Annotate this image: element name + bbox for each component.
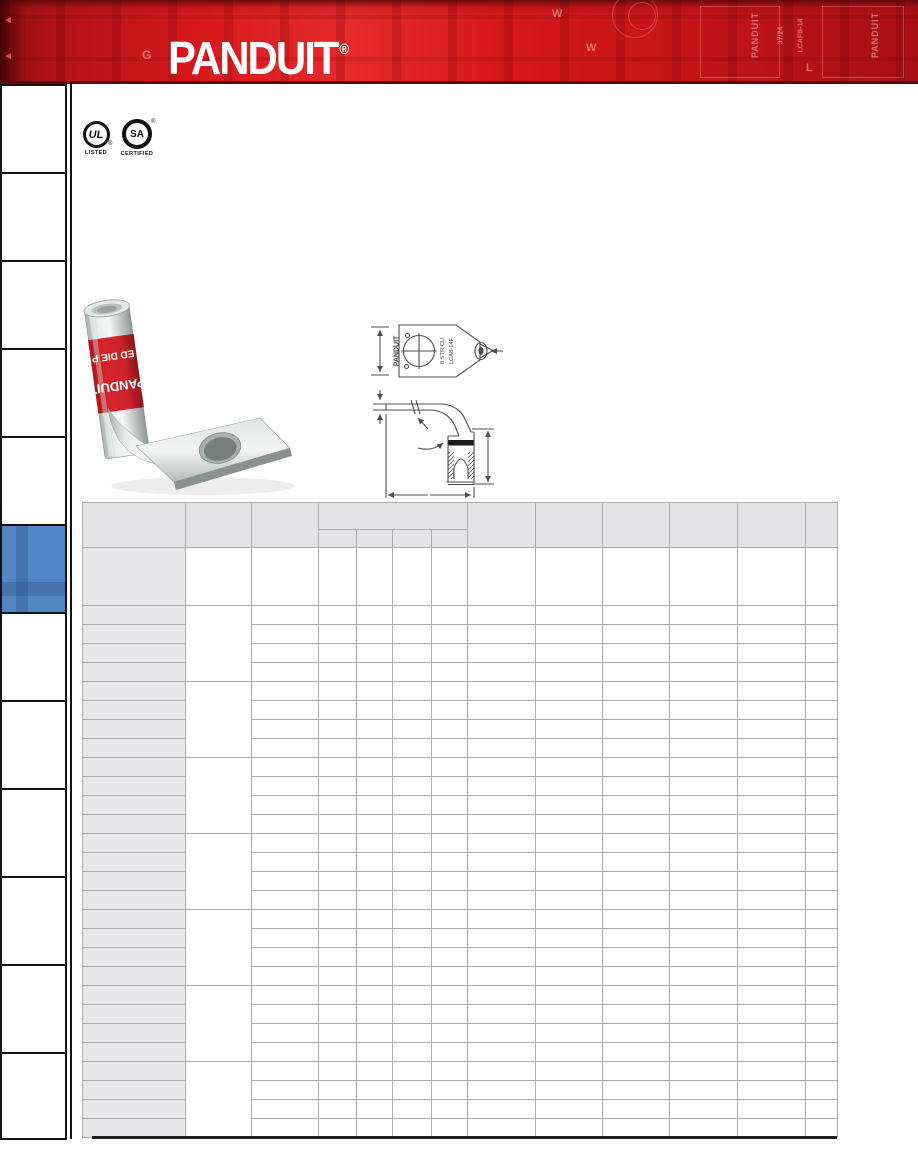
length-extension-lines bbox=[386, 414, 474, 498]
table-cell bbox=[738, 739, 806, 758]
table-cell bbox=[319, 815, 357, 834]
table-cell bbox=[738, 606, 806, 625]
table-cell bbox=[603, 701, 670, 720]
table-cell bbox=[393, 1119, 432, 1138]
table-cell bbox=[603, 853, 670, 872]
table-cell bbox=[432, 758, 468, 777]
table-cell bbox=[603, 777, 670, 796]
table-cell bbox=[806, 682, 838, 701]
table-cell bbox=[432, 815, 468, 834]
table-cell bbox=[252, 739, 319, 758]
table-cell bbox=[738, 815, 806, 834]
table-cell bbox=[432, 720, 468, 739]
table-cell-part bbox=[83, 663, 186, 682]
table-cell bbox=[806, 663, 838, 682]
sidebar-tab[interactable] bbox=[0, 172, 67, 260]
table-cell bbox=[357, 910, 393, 929]
table-cell bbox=[468, 758, 536, 777]
table-cell bbox=[357, 625, 393, 644]
table-row bbox=[83, 1062, 838, 1081]
header-arrow-glyph: ◄ bbox=[3, 16, 13, 26]
table-cell bbox=[319, 834, 357, 853]
table-cell bbox=[357, 663, 393, 682]
table-cell bbox=[603, 548, 670, 606]
table-cell bbox=[357, 644, 393, 663]
table-cell bbox=[670, 834, 738, 853]
table-cell bbox=[432, 796, 468, 815]
table-cell bbox=[468, 1100, 536, 1119]
table-cell bbox=[603, 720, 670, 739]
table-subheader-cell bbox=[357, 530, 393, 548]
table-header-cell bbox=[536, 503, 603, 548]
sidebar-tab-active[interactable] bbox=[0, 524, 67, 612]
table-cell-merged bbox=[186, 910, 252, 986]
table-cell-part bbox=[83, 853, 186, 872]
table-cell bbox=[806, 606, 838, 625]
table-cell bbox=[432, 948, 468, 967]
table-cell bbox=[738, 663, 806, 682]
table-cell bbox=[536, 853, 603, 872]
table-cell bbox=[536, 891, 603, 910]
table-cell bbox=[603, 1024, 670, 1043]
table-cell bbox=[252, 910, 319, 929]
table-cell bbox=[357, 701, 393, 720]
table-cell bbox=[603, 1005, 670, 1024]
wall-hatch bbox=[449, 452, 455, 479]
table-cell bbox=[670, 1043, 738, 1062]
table-cell bbox=[432, 606, 468, 625]
sidebar-tab[interactable] bbox=[0, 348, 67, 436]
table-cell bbox=[393, 815, 432, 834]
table-cell bbox=[670, 929, 738, 948]
table-cell bbox=[357, 967, 393, 986]
table-cell bbox=[670, 720, 738, 739]
table-cell bbox=[603, 834, 670, 853]
table-cell bbox=[252, 891, 319, 910]
csa-registered-symbol: ® bbox=[151, 119, 155, 125]
table-cell bbox=[252, 853, 319, 872]
table-cell bbox=[536, 1081, 603, 1100]
table-cell bbox=[468, 1119, 536, 1138]
inspection-dot bbox=[406, 334, 410, 338]
table-cell bbox=[806, 872, 838, 891]
table-cell bbox=[670, 1062, 738, 1081]
table-cell bbox=[603, 796, 670, 815]
table-cell bbox=[357, 872, 393, 891]
table-cell bbox=[468, 815, 536, 834]
table-cell bbox=[252, 929, 319, 948]
table-cell bbox=[738, 644, 806, 663]
table-cell bbox=[357, 815, 393, 834]
table-cell bbox=[432, 777, 468, 796]
table-cell bbox=[670, 701, 738, 720]
table-cell bbox=[357, 929, 393, 948]
table-cell bbox=[536, 758, 603, 777]
sidebar-tab[interactable] bbox=[0, 436, 67, 524]
csa-caption: CERTIFIED bbox=[119, 151, 155, 157]
table-cell bbox=[319, 1005, 357, 1024]
table-cell bbox=[393, 739, 432, 758]
table-cell bbox=[536, 929, 603, 948]
table-cell bbox=[738, 1081, 806, 1100]
table-cell bbox=[738, 548, 806, 606]
table-cell bbox=[432, 834, 468, 853]
table-header-cell bbox=[670, 503, 738, 548]
table-cell bbox=[393, 796, 432, 815]
table-cell-merged bbox=[186, 606, 252, 682]
table-cell-part bbox=[83, 967, 186, 986]
table-cell bbox=[603, 1062, 670, 1081]
table-cell bbox=[319, 1062, 357, 1081]
table-cell bbox=[393, 625, 432, 644]
table-cell bbox=[319, 625, 357, 644]
table-cell bbox=[738, 967, 806, 986]
table-cell bbox=[670, 910, 738, 929]
sidebar-tab[interactable] bbox=[0, 700, 67, 788]
table-cell bbox=[806, 796, 838, 815]
table-cell-part bbox=[83, 739, 186, 758]
table-cell bbox=[738, 929, 806, 948]
table-cell bbox=[252, 625, 319, 644]
table-cell bbox=[536, 1043, 603, 1062]
table-cell bbox=[603, 872, 670, 891]
registered-trademark-symbol: ® bbox=[340, 41, 350, 58]
table-cell bbox=[670, 758, 738, 777]
table-row bbox=[83, 986, 838, 1005]
header-pattern-label-panduit: PANDUIT bbox=[870, 12, 880, 58]
table-cell bbox=[738, 1062, 806, 1081]
table-cell bbox=[319, 682, 357, 701]
table-cell-merged bbox=[186, 682, 252, 758]
table-cell bbox=[252, 720, 319, 739]
table-cell bbox=[393, 910, 432, 929]
table-cell bbox=[357, 720, 393, 739]
table-cell bbox=[319, 1119, 357, 1138]
table-cell bbox=[432, 663, 468, 682]
table-cell bbox=[670, 625, 738, 644]
leader-arrow-curved bbox=[418, 443, 443, 449]
table-cell bbox=[468, 644, 536, 663]
table-cell bbox=[393, 853, 432, 872]
table-cell bbox=[536, 1119, 603, 1138]
table-cell bbox=[738, 758, 806, 777]
table-cell bbox=[319, 777, 357, 796]
table-cell bbox=[319, 644, 357, 663]
table-cell bbox=[536, 682, 603, 701]
table-cell bbox=[536, 910, 603, 929]
diagram-marking-line2: LCA8-14F bbox=[449, 337, 455, 364]
table-cell bbox=[670, 777, 738, 796]
table-cell bbox=[319, 1043, 357, 1062]
table-cell bbox=[319, 548, 357, 606]
table-cell bbox=[252, 606, 319, 625]
inspection-dot bbox=[405, 365, 409, 369]
table-cell bbox=[357, 1100, 393, 1119]
sidebar-tab[interactable] bbox=[0, 84, 67, 172]
table-cell bbox=[393, 758, 432, 777]
table-cell bbox=[603, 1100, 670, 1119]
table-cell bbox=[670, 682, 738, 701]
table-cell-part bbox=[83, 1043, 186, 1062]
table-cell bbox=[806, 834, 838, 853]
panduit-logo: PANDUIT® bbox=[168, 32, 349, 85]
table-cell bbox=[432, 682, 468, 701]
table-cell-part bbox=[83, 1119, 186, 1138]
sidebar-tab[interactable] bbox=[0, 612, 67, 700]
table-cell bbox=[536, 1024, 603, 1043]
table-cell-part bbox=[83, 644, 186, 663]
table-cell bbox=[468, 625, 536, 644]
table-cell-part bbox=[83, 1005, 186, 1024]
table-cell bbox=[393, 891, 432, 910]
table-cell bbox=[603, 910, 670, 929]
table-cell bbox=[252, 777, 319, 796]
table-row bbox=[83, 758, 838, 777]
table-cell bbox=[252, 948, 319, 967]
bore-sides bbox=[454, 468, 468, 479]
table-cell bbox=[806, 948, 838, 967]
table-cell bbox=[536, 777, 603, 796]
table-cell bbox=[357, 796, 393, 815]
wall-hatch bbox=[468, 452, 474, 479]
header-pattern-part-number: LCAFB-14 bbox=[797, 19, 804, 53]
csa-monogram: SA bbox=[130, 129, 144, 140]
product-photo-lug: ED DIE P PANDUIT bbox=[78, 296, 300, 498]
table-cell bbox=[357, 853, 393, 872]
table-cell-part bbox=[83, 701, 186, 720]
table-cell bbox=[357, 606, 393, 625]
thickness-extension-lines bbox=[373, 404, 389, 410]
table-cell bbox=[468, 1062, 536, 1081]
table-cell bbox=[468, 910, 536, 929]
table-row bbox=[83, 682, 838, 701]
ul-monogram: UL bbox=[89, 129, 104, 141]
sidebar-tab[interactable] bbox=[0, 788, 67, 876]
table-cell bbox=[738, 1005, 806, 1024]
table-cell-part bbox=[83, 1081, 186, 1100]
table-cell bbox=[357, 986, 393, 1005]
sidebar bbox=[0, 84, 67, 1140]
table-cell-part bbox=[83, 910, 186, 929]
table-cell bbox=[536, 986, 603, 1005]
table-cell bbox=[536, 967, 603, 986]
table-cell bbox=[319, 1024, 357, 1043]
table-header-cell bbox=[252, 503, 319, 548]
table-subheader-cell bbox=[319, 530, 357, 548]
table-cell bbox=[603, 948, 670, 967]
table-cell bbox=[603, 625, 670, 644]
table-cell bbox=[432, 701, 468, 720]
table-cell bbox=[468, 796, 536, 815]
table-cell-part bbox=[83, 929, 186, 948]
table-cell bbox=[468, 682, 536, 701]
table-cell bbox=[319, 796, 357, 815]
table-subheader-cell bbox=[432, 530, 468, 548]
table-cell bbox=[393, 606, 432, 625]
table-cell bbox=[468, 720, 536, 739]
table-cell bbox=[738, 853, 806, 872]
footer-rule bbox=[92, 1136, 837, 1139]
table-cell bbox=[806, 701, 838, 720]
table-group-header-cell bbox=[319, 503, 468, 530]
table-cell bbox=[536, 548, 603, 606]
table-cell bbox=[738, 1043, 806, 1062]
bend-inner-line bbox=[432, 410, 459, 436]
table-row bbox=[83, 834, 838, 853]
table-cell bbox=[738, 1119, 806, 1138]
sidebar-tab[interactable] bbox=[0, 1052, 67, 1140]
table-cell bbox=[738, 872, 806, 891]
csa-certified-mark: SA ® CERTIFIED bbox=[119, 119, 155, 157]
table-cell bbox=[738, 834, 806, 853]
table-cell bbox=[319, 986, 357, 1005]
header-left-shade bbox=[0, 0, 26, 81]
table-cell bbox=[468, 1081, 536, 1100]
table-cell bbox=[603, 891, 670, 910]
table-cell bbox=[603, 815, 670, 834]
table-cell bbox=[252, 1005, 319, 1024]
table-cell bbox=[806, 1081, 838, 1100]
table-cell bbox=[536, 720, 603, 739]
table-cell bbox=[670, 891, 738, 910]
table-cell bbox=[806, 1005, 838, 1024]
sidebar-tab[interactable] bbox=[0, 876, 67, 964]
break-ticks bbox=[411, 400, 420, 414]
table-cell bbox=[319, 929, 357, 948]
table-cell bbox=[319, 720, 357, 739]
table-cell bbox=[357, 548, 393, 606]
table-cell bbox=[319, 910, 357, 929]
table-cell-part bbox=[83, 720, 186, 739]
table-cell bbox=[806, 967, 838, 986]
table-cell-part bbox=[83, 625, 186, 644]
diagram-side-view bbox=[360, 386, 500, 504]
sidebar-tab[interactable] bbox=[0, 260, 67, 348]
table-cell bbox=[252, 1100, 319, 1119]
table-cell bbox=[319, 606, 357, 625]
table-cell bbox=[357, 682, 393, 701]
table-cell bbox=[670, 815, 738, 834]
table-cell bbox=[603, 986, 670, 1005]
table-cell bbox=[670, 1119, 738, 1138]
table-cell bbox=[252, 644, 319, 663]
table-cell bbox=[536, 739, 603, 758]
table-cell bbox=[357, 1062, 393, 1081]
table-cell bbox=[319, 872, 357, 891]
table-cell bbox=[252, 682, 319, 701]
table-cell bbox=[393, 1005, 432, 1024]
table-cell bbox=[357, 834, 393, 853]
table-cell bbox=[670, 548, 738, 606]
table-cell bbox=[536, 1062, 603, 1081]
table-subheader-cell bbox=[393, 530, 432, 548]
diagram-brand-text: PANDUIT bbox=[394, 335, 401, 366]
table-cell bbox=[738, 796, 806, 815]
table-cell bbox=[432, 853, 468, 872]
header-pattern-label-w-dim: W bbox=[586, 42, 596, 54]
table-cell bbox=[806, 1100, 838, 1119]
height-extension-lines bbox=[472, 429, 494, 484]
table-cell-part bbox=[83, 606, 186, 625]
table-cell bbox=[468, 891, 536, 910]
table-cell bbox=[670, 1100, 738, 1119]
table-cell bbox=[603, 967, 670, 986]
table-cell bbox=[432, 739, 468, 758]
table-cell bbox=[357, 1043, 393, 1062]
table-cell bbox=[252, 548, 319, 606]
table-cell bbox=[468, 986, 536, 1005]
ul-caption: LISTED bbox=[80, 150, 112, 156]
table-cell bbox=[357, 758, 393, 777]
table-cell bbox=[603, 644, 670, 663]
table-cell bbox=[738, 910, 806, 929]
table-cell bbox=[393, 929, 432, 948]
ul-registered-symbol: ® bbox=[108, 141, 112, 147]
table-cell bbox=[670, 644, 738, 663]
product-table bbox=[82, 502, 838, 1138]
table-cell bbox=[252, 872, 319, 891]
csa-circle-icon: SA bbox=[122, 119, 152, 149]
table-cell bbox=[670, 872, 738, 891]
table-cell bbox=[806, 739, 838, 758]
table-cell bbox=[252, 1081, 319, 1100]
table-cell bbox=[432, 910, 468, 929]
table-cell bbox=[393, 777, 432, 796]
table-cell bbox=[357, 777, 393, 796]
table-cell bbox=[806, 644, 838, 663]
table-cell bbox=[670, 967, 738, 986]
table-cell bbox=[738, 625, 806, 644]
table-cell bbox=[393, 644, 432, 663]
table-cell bbox=[468, 701, 536, 720]
sidebar-tab[interactable] bbox=[0, 964, 67, 1052]
table-cell bbox=[357, 739, 393, 758]
ul-circle-icon: UL bbox=[83, 121, 110, 148]
table-cell bbox=[670, 986, 738, 1005]
leader-arrow bbox=[418, 418, 428, 429]
table-cell bbox=[319, 663, 357, 682]
table-cell bbox=[432, 986, 468, 1005]
table-cell bbox=[806, 891, 838, 910]
table-cell bbox=[468, 834, 536, 853]
table-cell bbox=[252, 815, 319, 834]
table-cell bbox=[536, 606, 603, 625]
table-cell bbox=[319, 967, 357, 986]
table-cell bbox=[252, 1043, 319, 1062]
table-cell bbox=[603, 929, 670, 948]
table-cell bbox=[357, 891, 393, 910]
table-cell-part bbox=[83, 758, 186, 777]
table-cell bbox=[468, 967, 536, 986]
table-cell bbox=[806, 815, 838, 834]
table-cell bbox=[319, 758, 357, 777]
table-cell bbox=[806, 1024, 838, 1043]
table-cell bbox=[432, 872, 468, 891]
table-cell bbox=[393, 986, 432, 1005]
table-cell bbox=[432, 1119, 468, 1138]
barrel-neck-lines bbox=[448, 432, 474, 436]
table-cell bbox=[738, 720, 806, 739]
table-cell bbox=[536, 948, 603, 967]
table-cell bbox=[536, 701, 603, 720]
table-cell bbox=[432, 1024, 468, 1043]
table-cell bbox=[393, 948, 432, 967]
table-cell bbox=[393, 1043, 432, 1062]
table-cell bbox=[252, 1119, 319, 1138]
table-cell bbox=[432, 548, 468, 606]
table-cell bbox=[393, 548, 432, 606]
table-cell bbox=[806, 1119, 838, 1138]
